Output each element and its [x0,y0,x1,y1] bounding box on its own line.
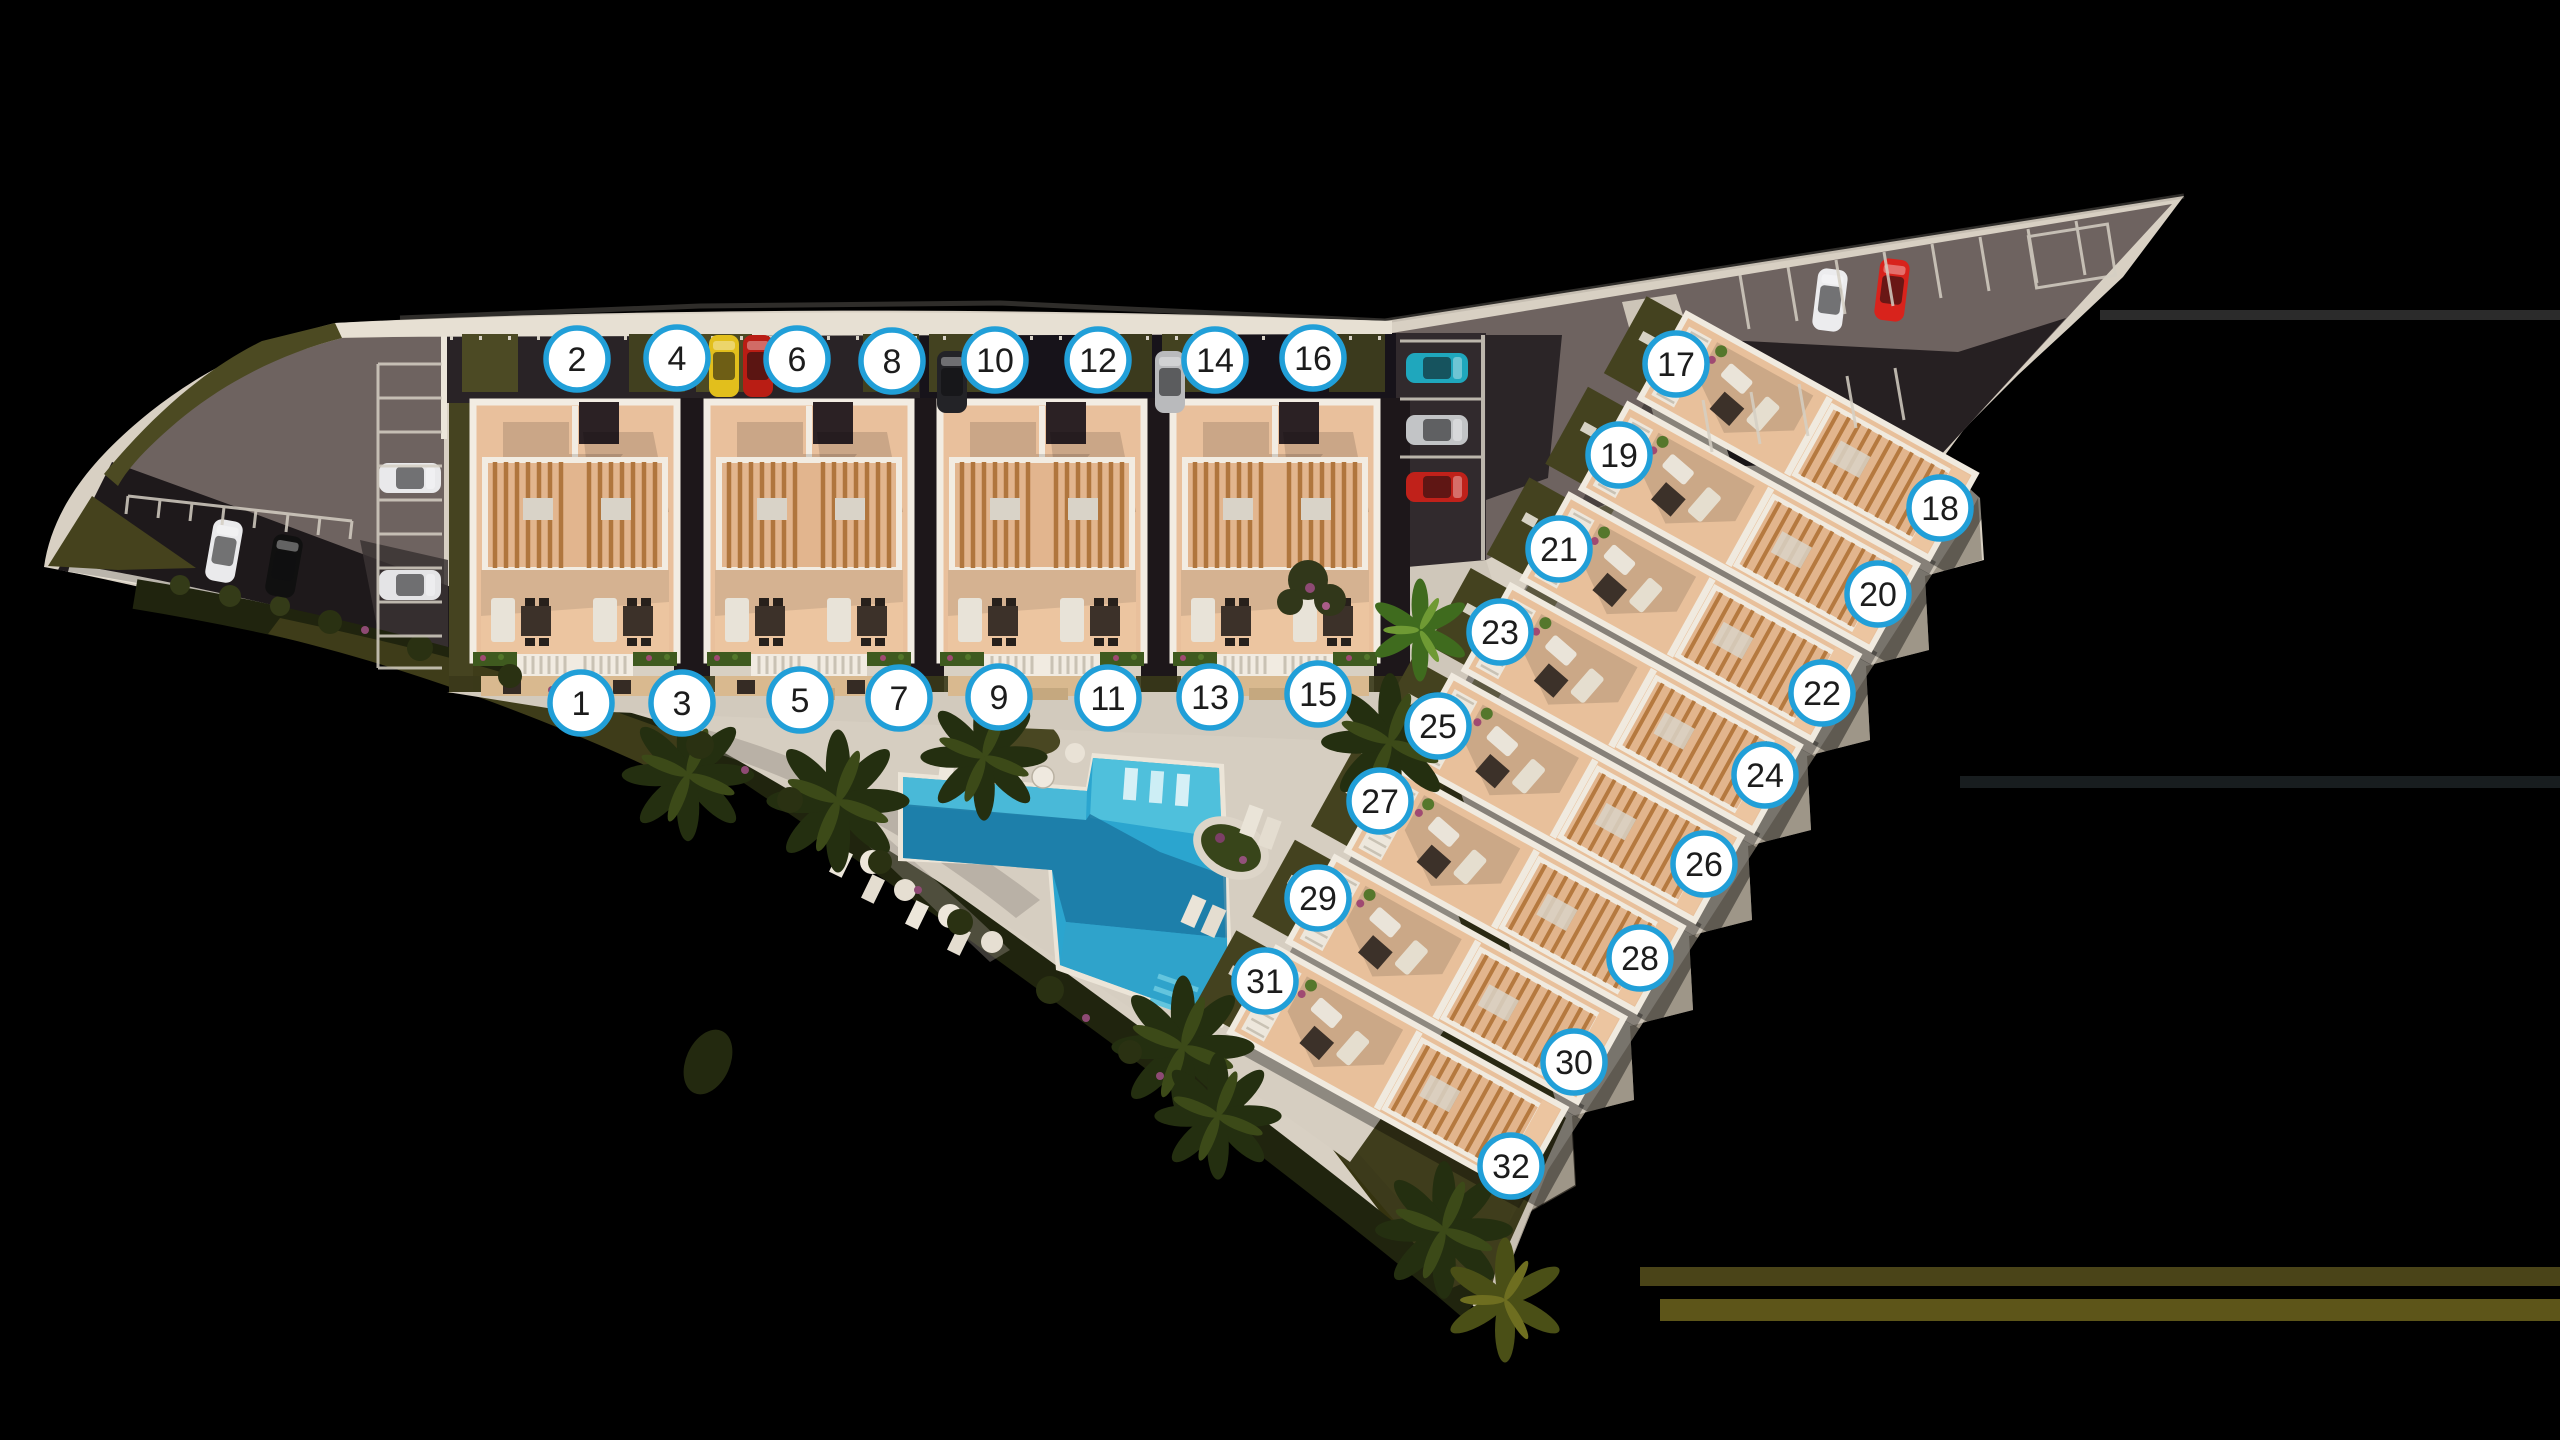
svg-text:21: 21 [1540,531,1578,569]
svg-text:11: 11 [1090,680,1125,718]
svg-text:26: 26 [1685,846,1723,884]
svg-text:32: 32 [1492,1148,1530,1186]
svg-text:17: 17 [1657,346,1695,384]
svg-text:1: 1 [572,685,591,723]
svg-text:31: 31 [1246,963,1284,1001]
svg-text:16: 16 [1294,340,1332,378]
svg-text:19: 19 [1600,437,1638,475]
svg-text:23: 23 [1481,614,1519,652]
svg-text:8: 8 [883,343,902,381]
svg-text:15: 15 [1299,676,1337,714]
svg-text:25: 25 [1419,708,1457,746]
svg-text:2: 2 [568,341,587,379]
svg-text:3: 3 [673,685,692,723]
svg-text:18: 18 [1921,490,1959,528]
svg-text:6: 6 [788,341,807,379]
svg-text:27: 27 [1361,783,1399,821]
svg-text:9: 9 [990,679,1009,717]
svg-text:7: 7 [890,680,909,718]
svg-text:30: 30 [1555,1044,1593,1082]
svg-text:20: 20 [1859,576,1897,614]
svg-text:10: 10 [976,342,1014,380]
svg-text:24: 24 [1746,757,1784,795]
svg-text:4: 4 [668,340,687,378]
svg-text:14: 14 [1196,342,1234,380]
svg-text:5: 5 [791,682,810,720]
svg-text:29: 29 [1299,880,1337,918]
svg-text:12: 12 [1079,342,1117,380]
svg-text:28: 28 [1621,940,1659,978]
svg-text:22: 22 [1803,675,1841,713]
svg-text:13: 13 [1191,679,1229,717]
